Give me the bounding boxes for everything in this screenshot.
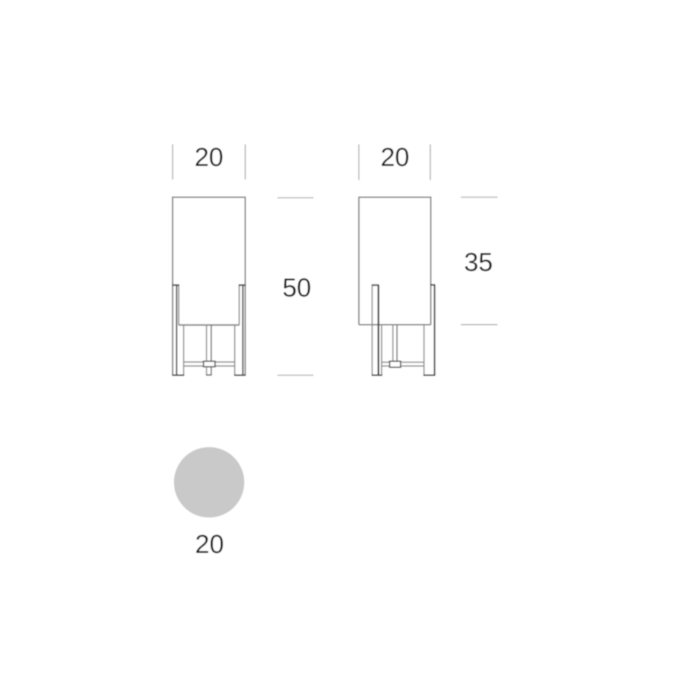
svg-text:35: 35 <box>464 247 493 277</box>
svg-text:50: 50 <box>282 273 311 303</box>
svg-text:20: 20 <box>194 142 223 172</box>
svg-text:20: 20 <box>195 529 224 559</box>
svg-text:20: 20 <box>380 142 409 172</box>
